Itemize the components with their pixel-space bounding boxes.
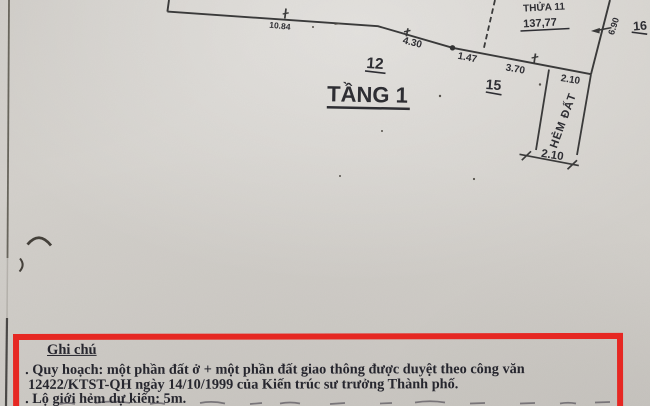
svg-text:16: 16 — [633, 19, 648, 34]
svg-text:15: 15 — [485, 76, 502, 93]
svg-text:137,77: 137,77 — [523, 17, 557, 31]
svg-text:TẦNG 1: TẦNG 1 — [327, 81, 408, 107]
svg-text:12: 12 — [366, 55, 384, 73]
